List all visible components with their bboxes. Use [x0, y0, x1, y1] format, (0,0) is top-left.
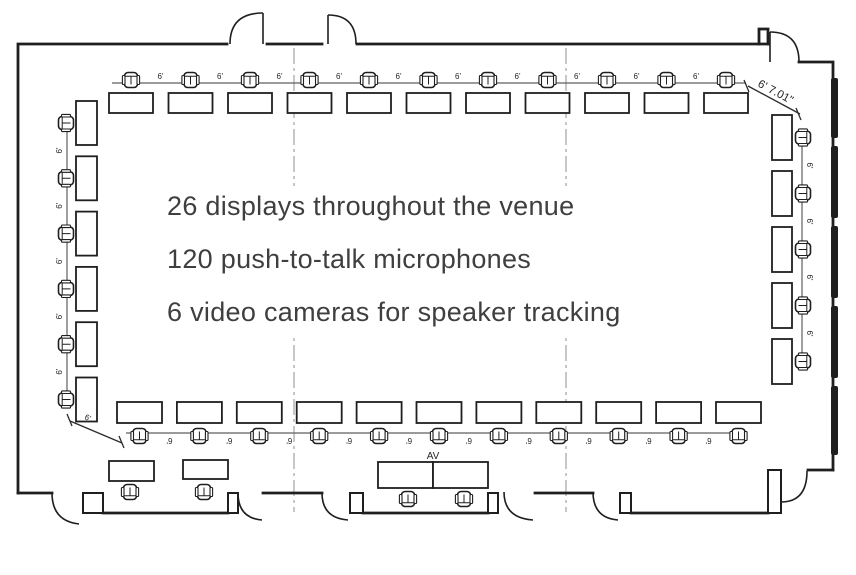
chair-armrest — [182, 76, 185, 85]
wall-post — [768, 470, 781, 513]
spacing-label: 6' — [805, 219, 814, 225]
spacing-label: 6' — [406, 436, 412, 445]
chair-armrest — [62, 114, 71, 117]
door-arc — [322, 493, 348, 520]
spacing-label: 6' — [466, 436, 472, 445]
chair-armrest — [445, 432, 448, 441]
chair — [191, 429, 208, 444]
chair-armrest — [717, 76, 720, 85]
table — [297, 402, 342, 423]
spacing-label: 6' — [574, 72, 580, 81]
wall-panel — [831, 306, 838, 378]
chair — [371, 429, 388, 444]
table — [169, 93, 213, 113]
spacing-label: 6' — [455, 72, 461, 81]
chair — [59, 114, 74, 131]
table — [76, 267, 97, 311]
chair-armrest — [301, 76, 304, 85]
chair — [59, 336, 74, 353]
chair — [550, 429, 567, 444]
table — [656, 402, 701, 423]
spacing-label: 6' — [277, 72, 283, 81]
wall-panel — [831, 146, 838, 218]
chair-armrest — [539, 76, 542, 85]
chair-armrest — [799, 129, 808, 132]
spacing-label: 6' — [55, 368, 64, 374]
chair — [182, 73, 199, 88]
spacing-label: 6' — [166, 436, 172, 445]
annotation-line-2: 120 push-to-talk microphones — [167, 246, 621, 273]
chair-armrest — [430, 432, 433, 441]
chair-armrest — [455, 495, 458, 504]
spacing-label: 6' — [226, 436, 232, 445]
table — [76, 156, 97, 200]
spacing-label: 6' — [634, 72, 640, 81]
chair — [59, 280, 74, 297]
chair — [796, 353, 811, 370]
chair-armrest — [658, 76, 661, 85]
spacing-label: 6' — [693, 72, 699, 81]
chair — [796, 129, 811, 146]
wall-panel — [831, 78, 838, 138]
door-arc — [770, 32, 799, 62]
chair-armrest — [62, 184, 71, 187]
chair — [301, 73, 318, 88]
dimension-tick — [67, 414, 72, 426]
chair-armrest — [685, 432, 688, 441]
av-table-label: AV — [427, 451, 440, 462]
chair — [122, 73, 139, 88]
spacing-label: 6' — [286, 436, 292, 445]
chair-armrest — [490, 432, 493, 441]
chair — [796, 185, 811, 202]
chair — [430, 429, 447, 444]
table — [109, 461, 154, 481]
chair-armrest — [360, 76, 363, 85]
table — [357, 402, 402, 423]
chair — [251, 429, 268, 444]
chair-armrest — [799, 200, 808, 203]
table — [237, 402, 282, 423]
table — [417, 402, 462, 423]
table — [378, 462, 433, 488]
chair-armrest — [554, 76, 557, 85]
table — [76, 101, 97, 145]
table — [76, 212, 97, 256]
chair-armrest — [799, 297, 808, 300]
table — [645, 93, 689, 113]
chair-armrest — [251, 432, 254, 441]
table — [585, 93, 629, 113]
table — [433, 462, 488, 488]
chair-armrest — [730, 432, 733, 441]
table — [177, 402, 222, 423]
spacing-label: 6' — [346, 436, 352, 445]
chair-armrest — [121, 488, 124, 497]
chair-armrest — [670, 432, 673, 441]
chair — [610, 429, 627, 444]
chair — [717, 73, 734, 88]
spacing-label: 6' — [396, 72, 402, 81]
chair — [121, 485, 138, 500]
wall-post — [83, 493, 103, 513]
spacing-label: 6' — [515, 72, 521, 81]
chair — [796, 297, 811, 314]
chair-armrest — [191, 432, 194, 441]
table — [596, 402, 641, 423]
annotation-line-3: 6 video cameras for speaker tracking — [167, 299, 621, 326]
chair — [399, 492, 416, 507]
spacing-label: 6' — [158, 72, 164, 81]
chair-armrest — [435, 76, 438, 85]
chair — [311, 429, 328, 444]
table — [772, 115, 792, 160]
chair — [241, 73, 258, 88]
chair-armrest — [62, 280, 71, 283]
chair-armrest — [316, 76, 319, 85]
spacing-label: 6' — [525, 436, 531, 445]
chair — [59, 391, 74, 408]
chair-armrest — [122, 76, 125, 85]
wall-panel — [831, 226, 838, 298]
chair-armrest — [136, 488, 139, 497]
table — [347, 93, 391, 113]
chair — [195, 485, 212, 500]
spacing-label: 6' — [55, 313, 64, 319]
door-arc — [238, 493, 262, 520]
chair — [670, 429, 687, 444]
chair-armrest — [385, 432, 388, 441]
table — [526, 93, 570, 113]
chair — [658, 73, 675, 88]
table — [772, 227, 792, 272]
annotations: 26 displays throughout the venue 120 pus… — [167, 193, 621, 326]
chair-armrest — [470, 495, 473, 504]
spacing-label: 6' — [217, 72, 223, 81]
table — [704, 93, 748, 113]
spacing-label: 6' — [705, 436, 711, 445]
table — [109, 93, 153, 113]
chair-armrest — [565, 432, 568, 441]
chair — [598, 73, 615, 88]
chair-armrest — [625, 432, 628, 441]
chair-armrest — [799, 256, 808, 259]
dimension-tick — [796, 108, 801, 120]
dimension-line-bottom-left — [70, 421, 122, 443]
chair-armrest — [799, 144, 808, 147]
chair-armrest — [311, 432, 314, 441]
chair-armrest — [241, 76, 244, 85]
chair-armrest — [598, 76, 601, 85]
table — [407, 93, 451, 113]
spacing-label: 6' — [55, 202, 64, 208]
chair-armrest — [62, 350, 71, 353]
wall-post — [350, 493, 363, 513]
chair-armrest — [146, 432, 149, 441]
chair-armrest — [375, 76, 378, 85]
chair-armrest — [799, 185, 808, 188]
wall-right — [799, 62, 833, 470]
table — [288, 93, 332, 113]
chair-armrest — [210, 488, 213, 497]
chair-armrest — [399, 495, 402, 504]
chair-armrest — [494, 76, 497, 85]
chair — [59, 225, 74, 242]
spacing-label: 6' — [336, 72, 342, 81]
spacing-label: 6' — [55, 147, 64, 153]
chair-armrest — [62, 295, 71, 298]
wall-post — [620, 493, 631, 513]
chair — [455, 492, 472, 507]
chair-armrest — [131, 432, 134, 441]
chair-armrest — [799, 368, 808, 371]
chair-armrest — [371, 432, 374, 441]
chair — [420, 73, 437, 88]
door-arc — [52, 493, 79, 524]
spacing-label: 6' — [805, 331, 814, 337]
chair-armrest — [62, 406, 71, 409]
chair-armrest — [414, 495, 417, 504]
table — [117, 402, 162, 423]
door-arc — [781, 471, 807, 502]
chair — [730, 429, 747, 444]
spacing-label: 6' — [55, 258, 64, 264]
chair-armrest — [610, 432, 613, 441]
chair-armrest — [62, 336, 71, 339]
chair — [479, 73, 496, 88]
chair-armrest — [420, 76, 423, 85]
chair — [59, 170, 74, 187]
chair — [539, 73, 556, 88]
chair-armrest — [62, 170, 71, 173]
door-arc — [328, 15, 356, 44]
chair-armrest — [550, 432, 553, 441]
table — [476, 402, 521, 423]
table — [466, 93, 510, 113]
chair — [796, 241, 811, 258]
chair-armrest — [205, 432, 208, 441]
chair-armrest — [265, 432, 268, 441]
wall-panel — [831, 386, 838, 455]
chair-armrest — [799, 241, 808, 244]
spacing-label: 6' — [585, 436, 591, 445]
spacing-label: 6' — [805, 275, 814, 281]
chair — [131, 429, 148, 444]
chair-armrest — [673, 76, 676, 85]
chair-armrest — [256, 76, 259, 85]
chair-armrest — [479, 76, 482, 85]
chair — [360, 73, 377, 88]
chair-armrest — [197, 76, 200, 85]
wall-post — [228, 493, 238, 513]
chair-armrest — [745, 432, 748, 441]
table — [772, 339, 792, 384]
chair-armrest — [62, 129, 71, 132]
wall-notch-top-right — [759, 29, 768, 44]
chair-armrest — [505, 432, 508, 441]
chair-armrest — [62, 225, 71, 228]
chair-armrest — [325, 432, 328, 441]
spacing-label: 6' — [805, 163, 814, 169]
floor-plan-page: AV 6' 7.01" 6' 6'6'6'6'6'6'6'6'6'6'6'6'6… — [0, 0, 856, 575]
wall-post — [488, 493, 498, 513]
table — [536, 402, 581, 423]
spacing-label: 6' — [645, 436, 651, 445]
chair — [490, 429, 507, 444]
chair-armrest — [62, 240, 71, 243]
door-arc — [593, 492, 618, 520]
table — [716, 402, 761, 423]
table — [183, 460, 228, 479]
table — [228, 93, 272, 113]
table — [772, 283, 792, 328]
chair-armrest — [732, 76, 735, 85]
table — [772, 171, 792, 216]
chair-armrest — [613, 76, 616, 85]
chair-armrest — [799, 353, 808, 356]
door-arc — [230, 13, 263, 44]
door-arc — [504, 492, 533, 520]
chair-armrest — [195, 488, 198, 497]
right-wall-panels — [831, 78, 838, 455]
table — [76, 322, 97, 366]
dimension-label-top-right: 6' 7.01" — [756, 78, 795, 107]
annotation-line-1: 26 displays throughout the venue — [167, 193, 621, 220]
chair-armrest — [62, 391, 71, 394]
chair-armrest — [137, 76, 140, 85]
chair-armrest — [799, 312, 808, 315]
